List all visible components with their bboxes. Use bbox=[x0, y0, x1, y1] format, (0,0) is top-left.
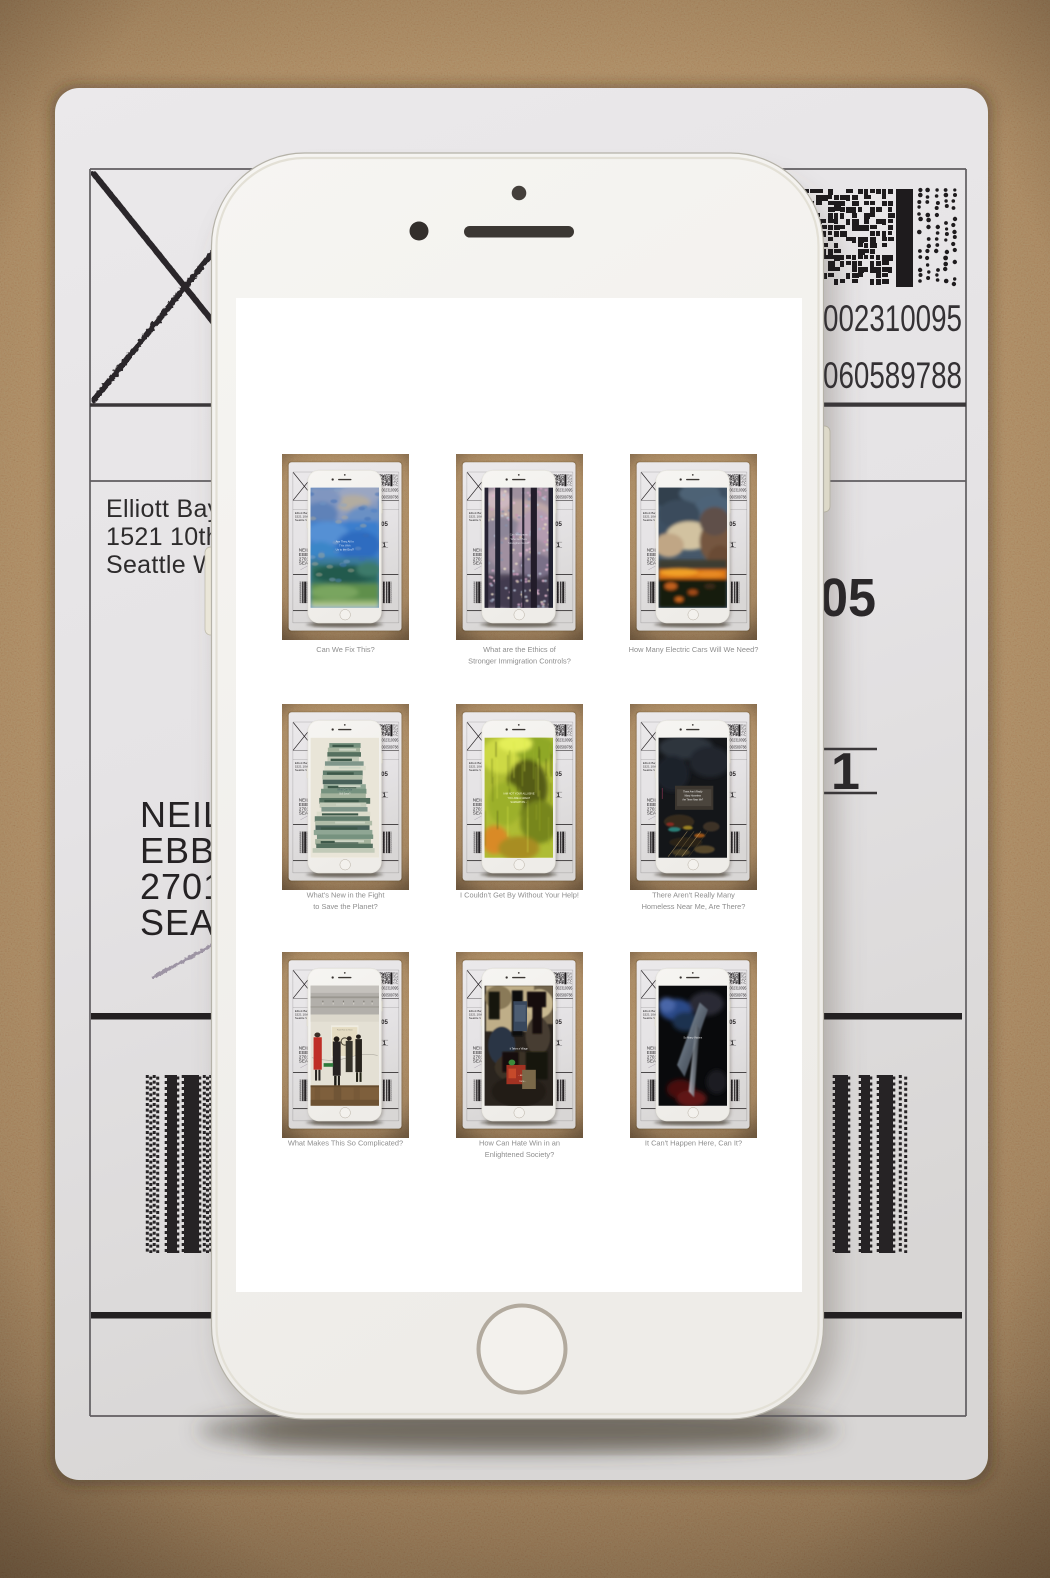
svg-text:Can We Fix This?: Can We Fix This? bbox=[316, 645, 374, 654]
svg-text:What Makes This So Complicated: What Makes This So Complicated? bbox=[288, 1139, 403, 1148]
svg-text:Homeless Near Me, Are There?: Homeless Near Me, Are There? bbox=[642, 902, 746, 911]
svg-text:How Many Electric Cars Will We: How Many Electric Cars Will We Need? bbox=[629, 645, 759, 654]
svg-text:...as: ...as bbox=[518, 1074, 523, 1077]
svg-text:here...: here... bbox=[519, 1080, 526, 1083]
svg-text:This With: This With bbox=[339, 544, 351, 548]
svg-text:Many Homeless: Many Homeless bbox=[685, 796, 702, 798]
svg-text:What Can We: What Can We bbox=[337, 788, 353, 791]
svg-text:SAMARITAN...: SAMARITAN... bbox=[510, 801, 527, 804]
svg-text:Us to the End?: Us to the End? bbox=[336, 548, 355, 552]
svg-text:Can Immigrants: Can Immigrants bbox=[510, 534, 529, 537]
svg-text:Still Save?: Still Save? bbox=[339, 793, 351, 796]
svg-text:Enlightened Society?: Enlightened Society? bbox=[485, 1150, 554, 1159]
svg-text:There Aren't Really Many: There Aren't Really Many bbox=[652, 891, 735, 900]
svg-text:What's New in the Fight: What's New in the Fight bbox=[307, 891, 385, 900]
svg-text:It Can't Happen Here, Can It?: It Can't Happen Here, Can It? bbox=[645, 1139, 742, 1148]
svg-text:I Couldn't Get By Without Your: I Couldn't Get By Without Your Help! bbox=[460, 891, 579, 900]
svg-text:What are the Ethics of: What are the Ethics of bbox=[483, 645, 557, 654]
svg-text:Stronger Immigration Controls?: Stronger Immigration Controls? bbox=[468, 657, 571, 666]
svg-text:How Can Hate Win in an: How Can Hate Win in an bbox=[479, 1139, 560, 1148]
svg-text:I AM NOT YOUR ALLUSIVE: I AM NOT YOUR ALLUSIVE bbox=[503, 793, 535, 796]
svg-text:Who Get Here: Who Get Here bbox=[511, 538, 528, 541]
svg-text:Are They All In: Are They All In bbox=[336, 539, 354, 543]
svg-text:YOU ARE A GREAT: YOU ARE A GREAT bbox=[507, 797, 530, 800]
svg-text:it Takes a Village: it Takes a Village bbox=[510, 1047, 529, 1050]
svg-text:to Save the Planet?: to Save the Planet? bbox=[313, 902, 378, 911]
svg-text:So Many Victims: So Many Victims bbox=[683, 1036, 703, 1039]
svg-text:Strengthen Us All?: Strengthen Us All? bbox=[508, 542, 530, 545]
